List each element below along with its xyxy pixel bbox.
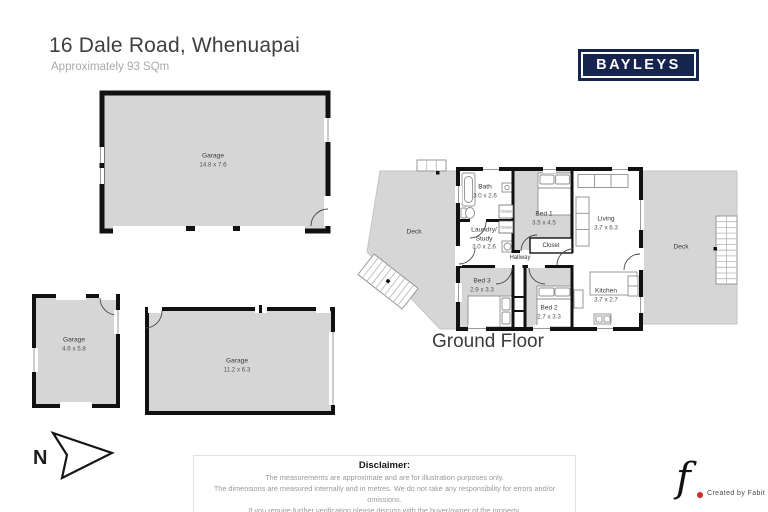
deck-right-label: Deck	[673, 244, 688, 253]
closet-small-1-label: Closet	[500, 209, 511, 214]
laundry-study-label: Laundry/ Study 3.0 x 2.6	[467, 226, 501, 251]
fabit-logo-dot	[697, 492, 703, 498]
disclaimer-title: Disclaimer:	[204, 460, 565, 471]
north-arrow	[53, 433, 112, 478]
closet-small-2-label: Closet	[500, 225, 511, 230]
living-label: Living 3.7 x 6.3	[594, 216, 618, 233]
fabit-credit-text: Created by Fabit	[707, 490, 765, 497]
garage-long-label: Garage 11.2 x 6.3	[224, 358, 251, 375]
deck-stairs-right	[714, 216, 738, 284]
bath-label: Bath 3.0 x 2.6	[473, 184, 497, 201]
kitchen-label: Kitchen 3.7 x 2.7	[594, 288, 618, 305]
deck-left-label: Deck	[406, 229, 421, 238]
hallway-label: Hallway	[509, 255, 530, 263]
disclaimer-line: If you require further verification plea…	[204, 506, 565, 512]
garage-large-label: Garage 14.8 x 7.6	[199, 153, 226, 170]
deck-left-shape	[367, 171, 458, 329]
floorplan-page: 16 Dale Road, Whenuapai Approximately 93…	[0, 0, 768, 512]
disclaimer-box: Disclaimer: The measurements are approxi…	[193, 455, 576, 512]
bed3-label: Bed 3 2.9 x 3.3	[470, 278, 494, 295]
closet-label: Closet	[542, 243, 559, 249]
north-label: N	[33, 447, 47, 470]
garage-small-label: Garage 4.6 x 5.8	[62, 337, 86, 354]
bed1-label: Bed 1 3.5 x 4.5	[532, 211, 556, 228]
bed2-label: Bed 2 2.7 x 3.3	[537, 305, 561, 322]
fabit-logo-glyph: f	[676, 455, 691, 501]
floor-title: Ground Floor	[432, 331, 544, 353]
plan-graphics	[0, 0, 768, 512]
disclaimer-line: The dimensions are measured internally a…	[204, 484, 565, 506]
disclaimer-line: The measurements are approximate and are…	[204, 473, 565, 484]
